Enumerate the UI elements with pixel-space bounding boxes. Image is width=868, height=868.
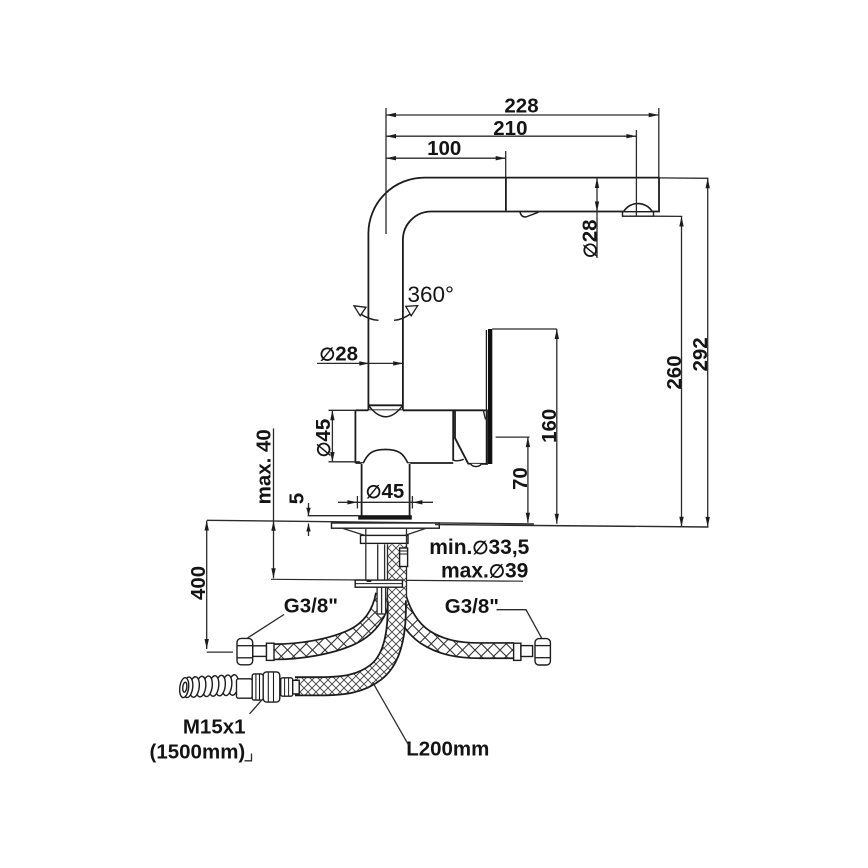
svg-text:(1500mm): (1500mm) (150, 741, 246, 764)
svg-text:∅28: ∅28 (320, 343, 359, 366)
svg-text:228: 228 (504, 94, 538, 117)
svg-text:∅45: ∅45 (312, 419, 335, 458)
svg-text:160: 160 (538, 409, 561, 443)
svg-text:∅28: ∅28 (578, 219, 601, 258)
svg-text:360°: 360° (408, 282, 455, 307)
svg-text:M15x1: M15x1 (183, 716, 246, 739)
svg-text:min.∅33,5: min.∅33,5 (429, 536, 529, 559)
svg-text:292: 292 (689, 337, 712, 371)
svg-text:260: 260 (663, 355, 686, 389)
svg-text:G3/8": G3/8" (445, 595, 499, 618)
svg-text:400: 400 (187, 566, 210, 600)
svg-text:210: 210 (493, 117, 527, 140)
svg-text:max. 40: max. 40 (252, 429, 275, 504)
svg-text:max.∅39: max.∅39 (441, 560, 528, 583)
svg-text:∅45: ∅45 (366, 480, 405, 503)
svg-text:G3/8": G3/8" (284, 595, 338, 618)
svg-text:5: 5 (285, 493, 308, 504)
svg-text:L200mm: L200mm (406, 738, 489, 761)
svg-text:70: 70 (509, 467, 532, 490)
svg-text:100: 100 (427, 137, 461, 160)
